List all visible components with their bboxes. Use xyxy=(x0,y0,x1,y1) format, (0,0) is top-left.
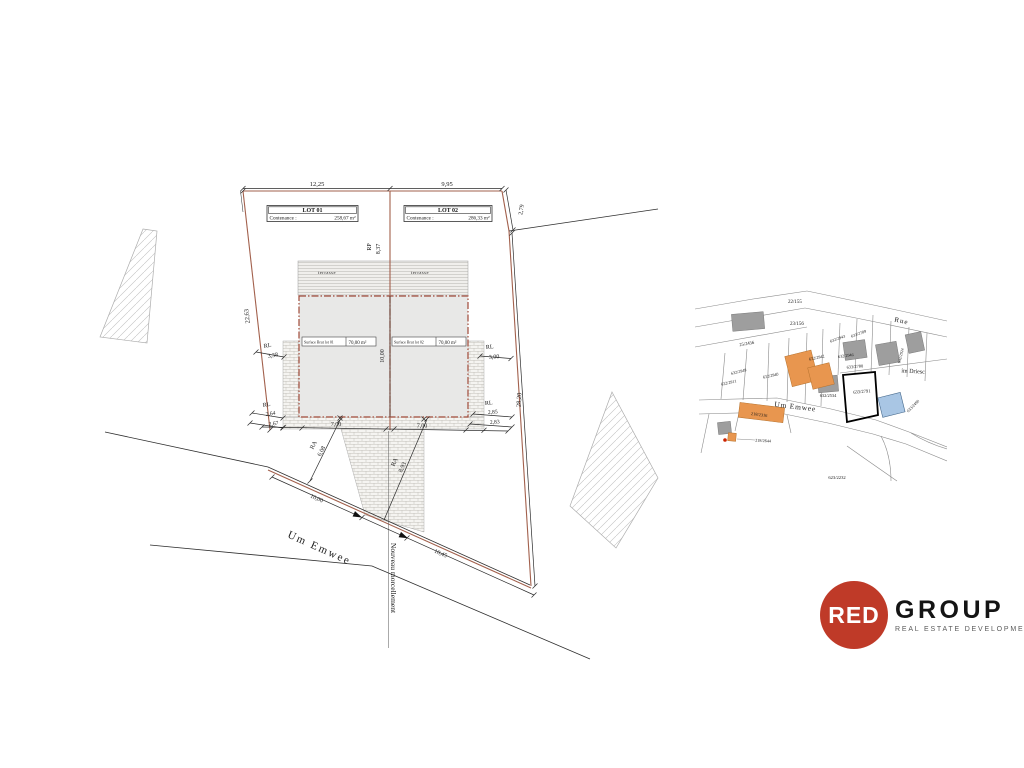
new-parcelling-note: Nouveau morcellement xyxy=(389,543,398,614)
rl-left-top-value: 3,38 xyxy=(267,352,278,360)
lot2-title: LOT 02 xyxy=(438,208,458,214)
logo-subtitle-text: REAL ESTATE DEVELOPMENT xyxy=(895,626,1024,633)
map-label-632-2949: 632/2949 xyxy=(730,367,747,376)
map-street-rue: Rue xyxy=(894,316,910,327)
rl-right-bottom-a: 2,85 xyxy=(488,409,498,416)
lot1-surface-box: Surface Brut lot 01 70,00 m² xyxy=(302,337,376,346)
map-label-25-2456: 25/2456 xyxy=(739,340,755,348)
map-label-632-2943: 632/2943 xyxy=(829,334,846,344)
ra-left-value: 6,08 xyxy=(317,445,327,457)
lot1-area: 258,67 m² xyxy=(334,216,356,222)
terrace-label-lot1: terrasse xyxy=(318,270,336,275)
location-map: 22/155 23/156 25/2456 Rue 632/2949 632/2… xyxy=(695,283,947,495)
map-subject-parcel xyxy=(843,372,878,422)
map-label-632-2940: 632/2940 xyxy=(762,371,779,379)
lot1-contenance-label: Contenance : xyxy=(270,216,298,222)
dim-left-side: 22,63 xyxy=(243,309,251,324)
logo-text-block: GROUP REAL ESTATE DEVELOPMENT xyxy=(895,598,1024,633)
terrace-label-lot2: terrasse xyxy=(411,270,429,275)
red-group-logo: RED GROUP REAL ESTATE DEVELOPMENT xyxy=(820,576,1022,654)
dim-right-upper: 2,79 xyxy=(518,204,526,215)
lot2-area: 286,33 m² xyxy=(468,216,490,222)
axis-label-rp: RP xyxy=(367,243,373,251)
dim-building-depth: 10,00 xyxy=(380,349,386,363)
map-label-633-2490: 633/2490 xyxy=(906,399,921,414)
terrace-strip: terrasse terrasse xyxy=(298,261,468,295)
ra-left-label: RA xyxy=(310,440,320,451)
map-label-23-156: 23/156 xyxy=(790,322,804,327)
lot2-contenance-label: Contenance : xyxy=(407,216,435,222)
rl-left-bottom-label: RL xyxy=(262,402,271,409)
dim-right-side: 28,20 xyxy=(516,392,524,407)
dim-top-right: 9,95 xyxy=(441,181,452,188)
map-locality: im Driesc xyxy=(901,368,925,375)
rl-right-top-value: 3,00 xyxy=(489,354,500,361)
lot1-title: LOT 01 xyxy=(302,208,322,214)
map-red-marker xyxy=(723,438,727,442)
lot2-surface-area: 70,00 m² xyxy=(439,340,457,346)
map-label-22-155: 22/155 xyxy=(788,300,802,305)
lot1-surface-area: 70,00 m² xyxy=(349,340,367,346)
map-building-blue xyxy=(878,392,905,417)
rl-right-bottom-b: 2,83 xyxy=(490,419,500,426)
lot1-header-box: LOT 01 Contenance : 258,67 m² xyxy=(267,206,358,222)
dim-width-lot1: 7,00 xyxy=(331,422,342,428)
neighbour-building-hatch-topleft xyxy=(100,229,157,343)
map-label-218-2644: 218/2644 xyxy=(755,438,772,444)
logo-red-circle: RED xyxy=(820,581,888,649)
dim-road-left: 10,00 xyxy=(309,494,324,505)
map-label-623-2232: 623/2232 xyxy=(828,475,846,480)
map-label-633-2789: 633/2789 xyxy=(850,329,867,339)
logo-group-text: GROUP xyxy=(895,598,1024,623)
map-label-633-2780: 633/2780 xyxy=(846,363,864,369)
map-buildings-orange xyxy=(728,350,835,441)
neighbour-building-hatch-bottomright xyxy=(570,392,658,548)
lot1-surface-label: Surface Brut lot 01 xyxy=(304,340,334,344)
dim-width-lot2: 7,00 xyxy=(417,423,428,429)
logo-red-text: RED xyxy=(828,602,880,629)
dim-top-left: 12,25 xyxy=(310,181,325,188)
lot2-header-box: LOT 02 Contenance : 286,33 m² xyxy=(404,206,492,222)
map-label-632-2534: 632/2534 xyxy=(820,393,837,398)
lot2-surface-box: Surface Brut lot 02 70,00 m² xyxy=(392,337,466,346)
rl-left-top-label: RL xyxy=(263,343,272,350)
lot2-surface-label: Surface Brut lot 02 xyxy=(394,340,424,344)
axis-value-rp: 8,37 xyxy=(376,244,382,255)
rl-right-top-label: RL xyxy=(486,344,494,351)
street-name: Um Emwee xyxy=(286,529,353,568)
rl-right-bottom-label: RL xyxy=(485,400,493,407)
